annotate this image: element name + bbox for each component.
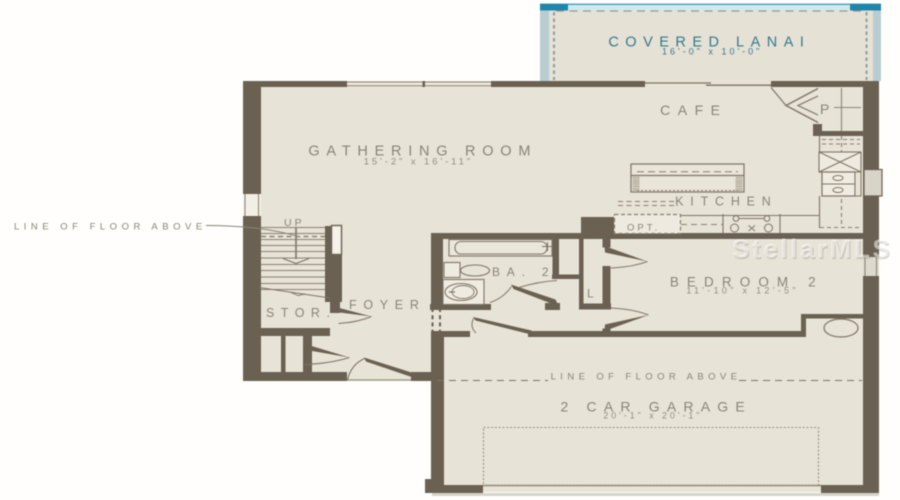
svg-text:KITCHEN: KITCHEN — [675, 195, 777, 209]
svg-text:20'-1" x 20'-1": 20'-1" x 20'-1" — [603, 411, 702, 421]
svg-text:LINE OF FLOOR ABOVE: LINE OF FLOOR ABOVE — [551, 371, 742, 382]
svg-text:BA. 2: BA. 2 — [492, 265, 555, 279]
svg-text:STOR.: STOR. — [266, 306, 336, 320]
svg-text:11'-10" x 12'-5": 11'-10" x 12'-5" — [686, 286, 799, 296]
svg-text:StellarMLS: StellarMLS — [732, 234, 892, 264]
svg-text:OPT.: OPT. — [627, 223, 660, 234]
svg-text:P: P — [820, 101, 829, 117]
svg-text:CAFE: CAFE — [660, 102, 727, 118]
svg-text:15'-2" x 16'-11": 15'-2" x 16'-11" — [364, 157, 473, 168]
svg-text:UP: UP — [284, 217, 305, 229]
svg-text:LINE OF FLOOR ABOVE: LINE OF FLOOR ABOVE — [14, 222, 207, 233]
svg-text:L: L — [587, 287, 594, 301]
svg-text:FOYER: FOYER — [349, 298, 426, 312]
svg-text:16'-0" x 10'-0": 16'-0" x 10'-0" — [662, 46, 762, 56]
